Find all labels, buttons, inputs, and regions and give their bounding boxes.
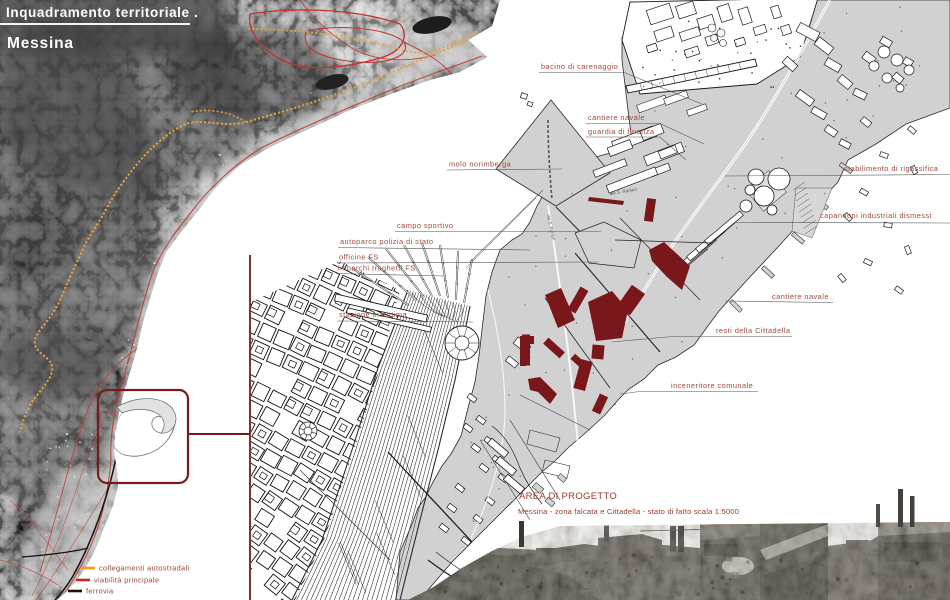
svg-text:ferrovia: ferrovia: [86, 587, 114, 596]
svg-text:AREA DI PROGETTO: AREA DI PROGETTO: [519, 491, 617, 502]
svg-text:Inquadramento territoriale .: Inquadramento territoriale .: [6, 5, 198, 20]
svg-text:stazione marittima: stazione marittima: [339, 310, 408, 319]
svg-text:autoparco polizia di stato: autoparco polizia di stato: [340, 237, 433, 246]
svg-text:viabilità principale: viabilità principale: [94, 576, 159, 585]
svg-text:guardia di finanza: guardia di finanza: [588, 127, 655, 136]
svg-text:collegamenti autostradali: collegamenti autostradali: [99, 564, 190, 573]
svg-text:capannoni industriali dismessi: capannoni industriali dismessi: [820, 211, 932, 220]
svg-text:campo sportivo: campo sportivo: [397, 221, 453, 230]
svg-text:officine FS: officine FS: [339, 253, 379, 262]
svg-text:imbarchi traghetti FS: imbarchi traghetti FS: [338, 264, 416, 273]
svg-text:molo norimberga: molo norimberga: [449, 160, 512, 169]
svg-text:bacino di carenaggio: bacino di carenaggio: [541, 62, 618, 71]
svg-text:inceneritore comunale: inceneritore comunale: [671, 381, 753, 390]
svg-text:Messina - zona falcata e Citta: Messina - zona falcata e Cittadella - st…: [518, 507, 739, 516]
svg-text:Messina: Messina: [7, 35, 74, 52]
svg-text:resti della Cittadella: resti della Cittadella: [716, 326, 791, 335]
svg-text:stabilimento di rigassifica: stabilimento di rigassifica: [844, 164, 939, 173]
svg-text:cantiere navale: cantiere navale: [588, 113, 645, 122]
svg-text:cantiere navale: cantiere navale: [772, 292, 829, 301]
